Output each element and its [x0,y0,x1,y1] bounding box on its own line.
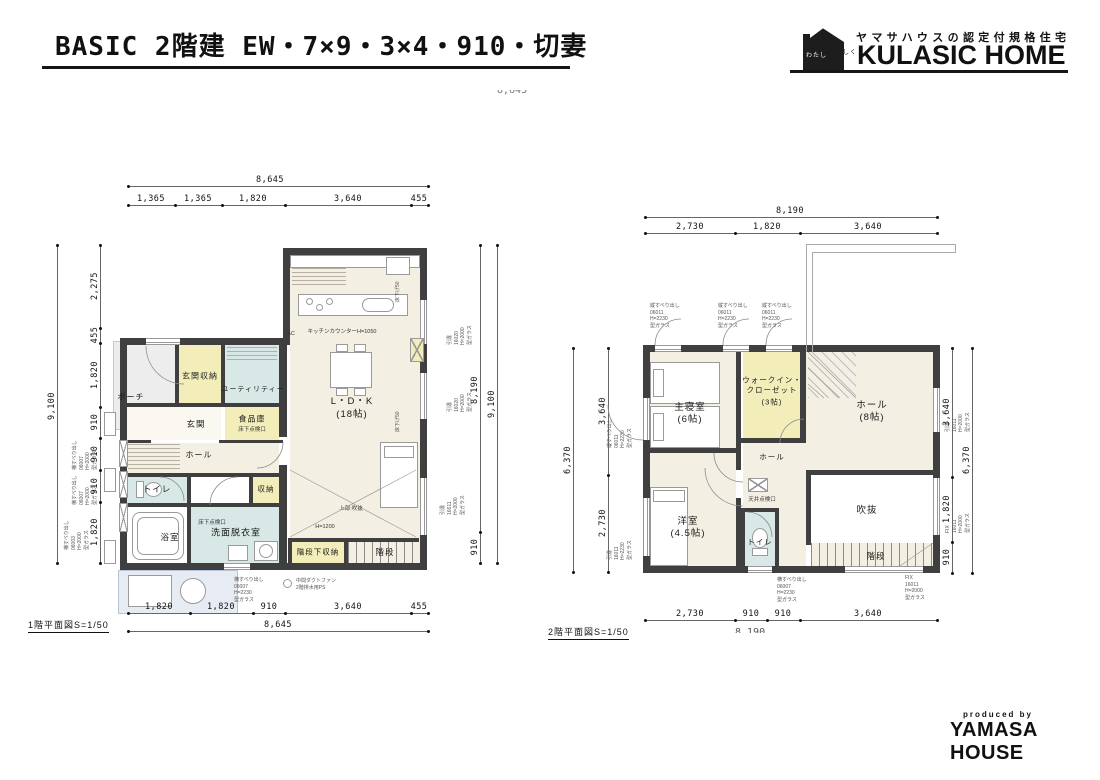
dim-tick [734,619,737,622]
label-toilet-2f: トイレ [747,537,773,548]
dim-line [480,245,481,563]
dim-value: 1,365 [137,194,165,204]
wall [736,345,741,448]
dim-tick [127,630,130,633]
pillow [384,446,414,458]
fix-window [933,478,940,535]
sheet-title: BASIC 2階建 EW・7×9・3×4・910・切妻 [55,26,587,63]
dim-tick [951,541,954,544]
awning-window [748,566,772,573]
entrance-door [146,338,180,345]
window-note: 引違 16020 H=2000 型ガラス [447,325,473,345]
label-pantry: 食品庫 [239,414,266,425]
casement-window [655,345,681,352]
dim-tick [99,244,102,247]
wall [288,538,292,563]
awning-window [224,563,250,570]
dim-line [645,233,937,234]
utility-floor-lines [227,347,277,363]
wall [933,345,940,573]
exterior-fixture [104,540,116,564]
floor2-caption: 2階平面図S=1/50 [548,625,629,640]
label-entrance: 玄関 [186,418,205,430]
roof-outline [812,252,813,352]
washbasin [228,545,248,561]
dim-line [497,245,498,563]
label-western-size: (4.5帖) [670,525,705,539]
stove-burner [306,298,313,305]
dim-value: 1,365 [184,194,212,204]
chair [336,344,348,352]
wall [127,440,151,443]
wall [120,563,427,570]
dim-tick [56,562,59,565]
label-entrance-storage: 玄関収納 [182,371,218,382]
window-note: 引違 16011 H=2230 型ガラス [607,540,633,560]
dim-tick [572,347,575,350]
dim-tick [951,572,954,575]
dim-tick [427,612,430,615]
label-wic-2: クローゼット [747,385,798,396]
fix-window [845,566,923,573]
dim-value: 8,645 [264,620,292,630]
dim-tick [734,232,737,235]
dim-value: 3,640 [854,609,882,619]
window-note: 縦すべり出し 06011 H=2230 型ガラス [650,303,680,329]
exterior-fixture [104,468,116,492]
floor-drop-note: 床下げ50 [395,411,402,432]
label-hall-2f-size: (8帖) [859,409,884,423]
dim-value: 8,645 [256,175,284,185]
dim-value: 910 [743,609,760,619]
dim-tick [799,232,802,235]
label-ceiling-hatch: 天井点検口 [748,495,776,503]
wall [643,448,741,453]
label-washroom-hatch: 床下点検口 [198,518,226,526]
kitchen-floor-lines [292,268,346,288]
dim-line [645,217,937,218]
dim-tick [644,216,647,219]
dim-tick [99,406,102,409]
wall [741,508,745,566]
dim-value: 910 [942,549,952,566]
roof-outline [806,244,956,245]
dim-tick [607,347,610,350]
wall [344,538,348,563]
chair [354,344,366,352]
label-void-above: 上部:吹抜 [339,504,363,512]
dim-tick [644,232,647,235]
dim-tick [56,244,59,247]
wall [806,470,933,475]
logo-brand: KULASIC HOME [857,40,1066,71]
label-toilet-1f: トイレ [143,483,172,495]
window-note: 縦すべり出し 06011 H=2230 型ガラス [607,418,633,448]
dim-tick [479,244,482,247]
dim-line [972,348,973,573]
dim-value: 9,100 [487,390,497,418]
heat-pump-unit [180,578,206,604]
dim-tick [127,185,130,188]
produced-by-label: produced by [963,710,1033,719]
label-corridor-2f: ホール [759,452,785,463]
dim-tick [99,327,102,330]
dim-tick [766,619,769,622]
yamasa-house-logo: YAMASA HOUSE [950,719,1100,765]
toilet-tank [752,548,768,556]
roof-outline [812,252,956,253]
window-note: 縦すべり出し 06011 H=2230 型ガラス [718,303,748,329]
label-hall-1f: ホール [186,450,213,461]
dim-value: 1,820 [90,361,100,389]
dim-value: 2,730 [676,609,704,619]
awning-window [119,503,128,532]
dim-tick [284,204,287,207]
refrigerator [386,257,410,275]
stove-burner [326,298,333,305]
stair-open-hatch [808,352,856,398]
kitchen-sink [362,298,394,312]
label-ldk: L・D・K [331,393,373,407]
dim-line [57,245,58,563]
dim-tick [127,204,130,207]
dim-tick [607,571,610,574]
label-wic-size: (3帖) [762,397,783,408]
label-utility: ユーティリティー [221,384,284,394]
wall [736,438,806,443]
window-note: 横すべり出し 06003 H=2000 型ガラス [64,520,90,550]
dim-tick [971,347,974,350]
floor1-caption: 1階平面図S=1/50 [28,618,109,633]
dim-value: 1,820 [942,495,952,523]
dim-tick [479,531,482,534]
dim-tick [971,572,974,575]
wall [736,453,741,470]
dining-table [330,352,372,388]
dim-value: 1,820 [239,194,267,204]
dim-value: 2,730 [598,509,608,537]
wall [279,465,287,563]
label-under-stair-storage: 階段下収納 [297,547,340,558]
roof-outline [806,244,807,352]
dim-value: 2,730 [676,222,704,232]
logo-rule [790,70,1068,73]
dim-tick [284,612,287,615]
dim-tick [427,204,430,207]
wall [221,345,225,403]
wall [283,248,427,255]
wall [249,477,253,503]
dim-value: 910 [90,446,100,463]
plan-sheet: BASIC 2階建 EW・7×9・3×4・910・切妻 わたし らしく ヤマサハ… [0,0,1100,780]
dim-tick [252,612,255,615]
casement-window [766,345,792,352]
casement-window [723,345,749,352]
dim-value: 910 [775,609,792,619]
dim-value: 6,370 [962,446,972,474]
dim-value: 3,640 [942,398,952,426]
house-mark-text: わたし [806,50,827,59]
dim-line [128,205,428,206]
pillow [653,369,664,397]
dim-tick [644,619,647,622]
dim-tick [951,347,954,350]
dim-tick [572,571,575,574]
wall [187,507,191,563]
window-note: 縦すべり出し 06011 H=2230 型ガラス [762,303,792,329]
dim-tick [99,437,102,440]
label-bath: 浴室 [160,531,179,543]
sliding-window [643,498,650,556]
dim-value: 1,820 [753,222,781,232]
dim-value: 9,100 [47,392,57,420]
awning-window [119,440,128,467]
clipped-dimension-bottom: 8,190 [735,627,795,633]
dim-value: 3,640 [598,397,608,425]
dim-tick [427,630,430,633]
dim-value: 910 [470,539,480,556]
dim-line [608,348,609,572]
dim-line [573,348,574,572]
dim-value: 3,640 [334,602,362,612]
exterior-fixture [104,412,116,436]
casement-window [643,398,650,440]
dim-tick [607,474,610,477]
dim-tick [479,562,482,565]
dim-tick [427,185,430,188]
floor-drop-note: 床下げ50 [395,281,402,302]
stove-burner [316,304,323,311]
label-storage-1f: 収納 [258,484,275,495]
wall [187,477,191,503]
roof-outline [955,244,956,253]
dim-tick [951,476,954,479]
clipped-dimension-top: 8,645 [497,90,567,99]
hall-floor-lines [128,444,180,470]
pillow [653,413,664,441]
wall [800,345,806,443]
label-washroom: 洗面脱衣室 [211,526,261,539]
dim-value: 910 [261,602,278,612]
dim-tick [189,612,192,615]
title-rule [42,66,570,69]
dim-value: 910 [90,414,100,431]
sliding-window [420,478,427,535]
dim-line [128,613,428,614]
label-stairs-2f: 階段 [866,550,885,562]
wall [120,338,283,345]
dim-value: 1,820 [207,602,235,612]
dim-tick [99,342,102,345]
label-ac: AC [287,331,295,337]
wall [127,473,283,477]
dim-tick [99,562,102,565]
dim-tick [99,469,102,472]
label-kitchen-counter: キッチンカウンターH=1050 [308,327,377,335]
dim-value: 1,820 [90,518,100,546]
pillow [653,490,685,502]
dim-line [128,631,428,632]
label-stairs-1f: 階段 [375,546,394,558]
dim-tick [410,204,413,207]
wall [127,403,283,407]
window-note: FIX 16011 H=2000 型ガラス [905,575,925,601]
dim-tick [936,216,939,219]
window-note: 引違 16611 H=2000 型ガラス [440,495,466,515]
dim-tick [936,232,939,235]
dim-tick [496,244,499,247]
dim-value: 3,640 [854,222,882,232]
dim-line [100,245,101,563]
dim-value: 455 [411,602,428,612]
dim-line [952,348,953,573]
duct-fan-note: 中間ダクトファン 2階排水用PS [296,578,336,591]
dim-value: 1,820 [145,602,173,612]
dim-line [645,620,937,621]
wall [775,508,779,566]
wall [219,440,283,443]
label-h1200: H=1200 [315,524,334,530]
wall [806,470,811,545]
label-ldk-size: (18帖) [336,406,367,420]
dim-tick [496,562,499,565]
wall [741,508,779,512]
window-note: 横すべり出し 06007 H=2230 型ガラス [234,577,264,603]
dim-tick [127,612,130,615]
duct-fan-symbol [283,579,292,588]
dim-tick [221,204,224,207]
sliding-window [420,373,427,419]
washing-machine-drum [259,544,273,558]
dim-value: 8,190 [470,376,480,404]
dim-value: 3,640 [334,194,362,204]
dim-tick [799,619,802,622]
label-porch: ポーチ [118,392,145,403]
dim-value: 2,275 [90,272,100,300]
shutter-box [410,338,424,362]
dim-value: 8,190 [776,206,804,216]
dim-value: 910 [90,478,100,495]
wall [127,503,283,507]
label-void: 吹抜 [856,502,877,516]
dim-value: 455 [411,194,428,204]
dim-tick [410,612,413,615]
label-master-size: (6帖) [677,411,702,425]
house-mark-text-2: らしく [836,47,857,56]
window-note: 横すべり出し 06007 H=2230 型ガラス [777,577,807,603]
dim-tick [99,501,102,504]
label-pantry-hatch: 床下点検口 [238,425,266,433]
wall [175,341,179,407]
dim-tick [936,619,939,622]
dim-line [128,186,428,187]
sliding-window [933,388,940,432]
dim-value: 6,370 [563,446,573,474]
room-entrance [127,407,221,440]
dim-tick [174,204,177,207]
awning-window [119,471,128,498]
wall [288,538,419,542]
ceiling-hatch-symbol [748,478,768,492]
